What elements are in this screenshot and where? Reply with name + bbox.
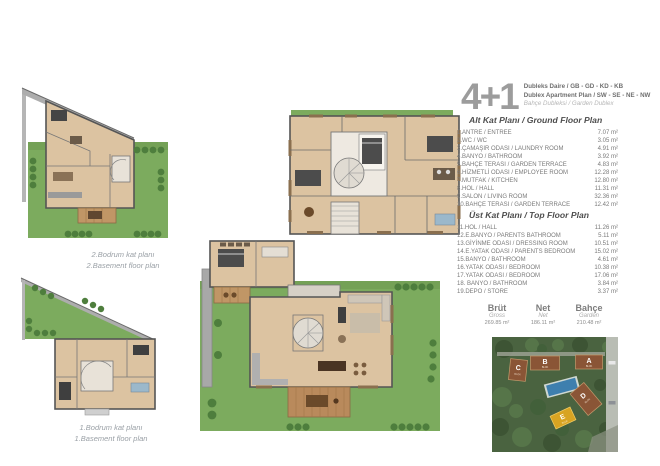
room-area: 11.26 m² [595,224,618,232]
room-row: 1.ANTRE / ENTREE7.07 m² [457,129,618,137]
room-row: 10.BAHÇE TERASI / GARDEN TERRACE12.42 m² [457,201,618,209]
room-row: 3.ÇAMAŞIR ODASI / LAUNDRY ROOM4.91 m² [457,145,618,153]
room-label: 4.BANYO / BATHROOM [457,153,522,161]
room-label: 15.BANYO / BATHROOM [457,256,526,264]
room-label: 5.BAHÇE TERASI / GARDEN TERRACE [457,161,567,169]
room-row: 5.BAHÇE TERASI / GARDEN TERRACE4.83 m² [457,161,618,169]
site-block-a-letter: A [586,358,591,365]
room-label: 7.MUTFAK / KITCHEN [457,177,518,185]
area-totals: Brüt Gross 269.85 m² Net Net 186.11 m² B… [474,303,612,327]
total-net: Net Net 186.11 m² [520,303,566,327]
unit-subtitle: Dubleks Daire / GB - GD - KD - KB Dublex… [518,80,651,113]
room-label: 17.YATAK ODASI / BEDROOM [457,272,540,280]
floor-plan-basement-2 [20,14,180,246]
room-area: 3.84 m² [598,280,618,288]
unit-line-en: Dublex Apartment Plan / SW - SE - NE - N… [524,92,651,101]
room-area: 17.06 m² [594,272,618,280]
room-label: 16.YATAK ODASI / BEDROOM [457,264,540,272]
caption-basement-1-tr: 1.Bodrum kat planı [58,422,164,433]
caption-basement-2-tr: 2.Bodrum kat planı [70,249,176,260]
room-label: 12.E.BANYO / PARENTS BATHROOM [457,232,561,240]
ground-floor-room-list: 1.ANTRE / ENTREE7.07 m² 2.WC / WC3.05 m²… [457,129,618,209]
floor-plan-ground-floor [190,235,462,435]
top-floor-heading: Üst Kat Planı / Top Floor Plan [469,210,589,220]
room-area: 10.51 m² [594,240,618,248]
room-row: 17.YATAK ODASI / BEDROOM17.06 m² [457,272,618,280]
site-plan-aerial: C BLOK B BLOK A BLOK D BLOK E BLOK [492,337,618,452]
room-row: 7.MUTFAK / KITCHEN12.80 m² [457,177,618,185]
site-block-b: B BLOK [531,356,560,370]
unit-type: 4+1 [461,80,518,113]
room-label: 10.BAHÇE TERASI / GARDEN TERRACE [457,201,570,209]
room-area: 11.31 m² [595,185,618,193]
floor-plan-basement-1 [15,277,177,419]
room-row: 16.YATAK ODASI / BEDROOM10.38 m² [457,264,618,272]
room-label: 18. BANYO / BATHROOM [457,280,527,288]
room-row: 14.E.YATAK ODASI / PARENTS BEDROOM15.02 … [457,248,618,256]
site-block-a-sub: BLOK [586,365,593,368]
room-label: 6.HİZMETLİ ODASI / EMPLOYEE ROOM [457,169,568,177]
total-gross-sublabel: Gross [474,313,520,320]
total-garden-value: 210.48 m² [566,320,612,327]
room-row: 6.HİZMETLİ ODASI / EMPLOYEE ROOM12.28 m² [457,169,618,177]
room-row: 18. BANYO / BATHROOM3.84 m² [457,280,618,288]
site-block-c-letter: C [515,365,521,372]
plan-sheet: 2.Bodrum kat planı 2.Basement floor plan… [0,0,660,466]
room-area: 3.37 m² [598,288,618,296]
room-row: 9.SALON / LIVING ROOM32.36 m² [457,193,618,201]
site-block-c: C BLOK [508,359,527,382]
room-area: 7.07 m² [598,129,618,137]
site-block-b-sub: BLOK [542,366,549,369]
unit-header: 4+1 Dubleks Daire / GB - GD - KD - KB Du… [461,80,650,113]
room-row: 12.E.BANYO / PARENTS BATHROOM5.11 m² [457,232,618,240]
room-area: 10.38 m² [594,264,618,272]
room-label: 1.ANTRE / ENTREE [457,129,512,137]
room-area: 4.83 m² [598,161,618,169]
room-label: 14.E.YATAK ODASI / PARENTS BEDROOM [457,248,575,256]
caption-basement-2-en: 2.Basement floor plan [70,260,176,271]
room-row: 19.DEPO / STORE3.37 m² [457,288,618,296]
caption-basement-2: 2.Bodrum kat planı 2.Basement floor plan [70,249,176,271]
caption-basement-1-en: 1.Basement floor plan [58,433,164,444]
room-area: 5.11 m² [598,232,618,240]
room-area: 4.91 m² [598,145,618,153]
room-area: 12.42 m² [594,201,618,209]
ground-floor-heading: Alt Kat Planı / Ground Floor Plan [469,115,602,125]
room-area: 15.02 m² [594,248,618,256]
room-row: 8.HOL / HALL11.31 m² [457,185,618,193]
room-row: 13.GİYİNME ODASI / DRESSING ROOM10.51 m² [457,240,618,248]
room-area: 32.36 m² [594,193,618,201]
room-row: 4.BANYO / BATHROOM3.92 m² [457,153,618,161]
total-gross-label: Brüt [474,303,520,313]
room-label: 13.GİYİNME ODASI / DRESSING ROOM [457,240,568,248]
room-row: 2.WC / WC3.05 m² [457,137,618,145]
room-area: 3.05 m² [598,137,618,145]
room-row: 11.HOL / HALL11.26 m² [457,224,618,232]
room-area: 12.28 m² [594,169,618,177]
room-label: 8.HOL / HALL [457,185,494,193]
site-block-b-letter: B [542,359,547,366]
total-net-label: Net [520,303,566,313]
room-label: 3.ÇAMAŞIR ODASI / LAUNDRY ROOM [457,145,563,153]
total-net-sublabel: Net [520,313,566,320]
caption-basement-1: 1.Bodrum kat planı 1.Basement floor plan [58,422,164,444]
room-label: 2.WC / WC [457,137,487,145]
total-gross-value: 269.85 m² [474,320,520,327]
top-floor-room-list: 11.HOL / HALL11.26 m² 12.E.BANYO / PAREN… [457,224,618,296]
total-net-value: 186.11 m² [520,320,566,327]
room-label: 19.DEPO / STORE [457,288,508,296]
room-row: 15.BANYO / BATHROOM4.61 m² [457,256,618,264]
room-area: 4.61 m² [598,256,618,264]
room-area: 12.80 m² [594,177,618,185]
floor-plan-top-floor [287,110,462,238]
total-garden: Bahçe Garden 210.48 m² [566,303,612,327]
total-gross: Brüt Gross 269.85 m² [474,303,520,327]
room-label: 11.HOL / HALL [457,224,497,232]
total-garden-label: Bahçe [566,303,612,313]
total-garden-sublabel: Garden [566,313,612,320]
unit-line-tr: Dubleks Daire / GB - GD - KD - KB [524,83,651,92]
site-block-a: A BLOK [576,355,603,369]
room-area: 3.92 m² [598,153,618,161]
room-label: 9.SALON / LIVING ROOM [457,193,527,201]
unit-line-garden: Bahçe Dubleksi / Garden Dublex [524,100,651,109]
